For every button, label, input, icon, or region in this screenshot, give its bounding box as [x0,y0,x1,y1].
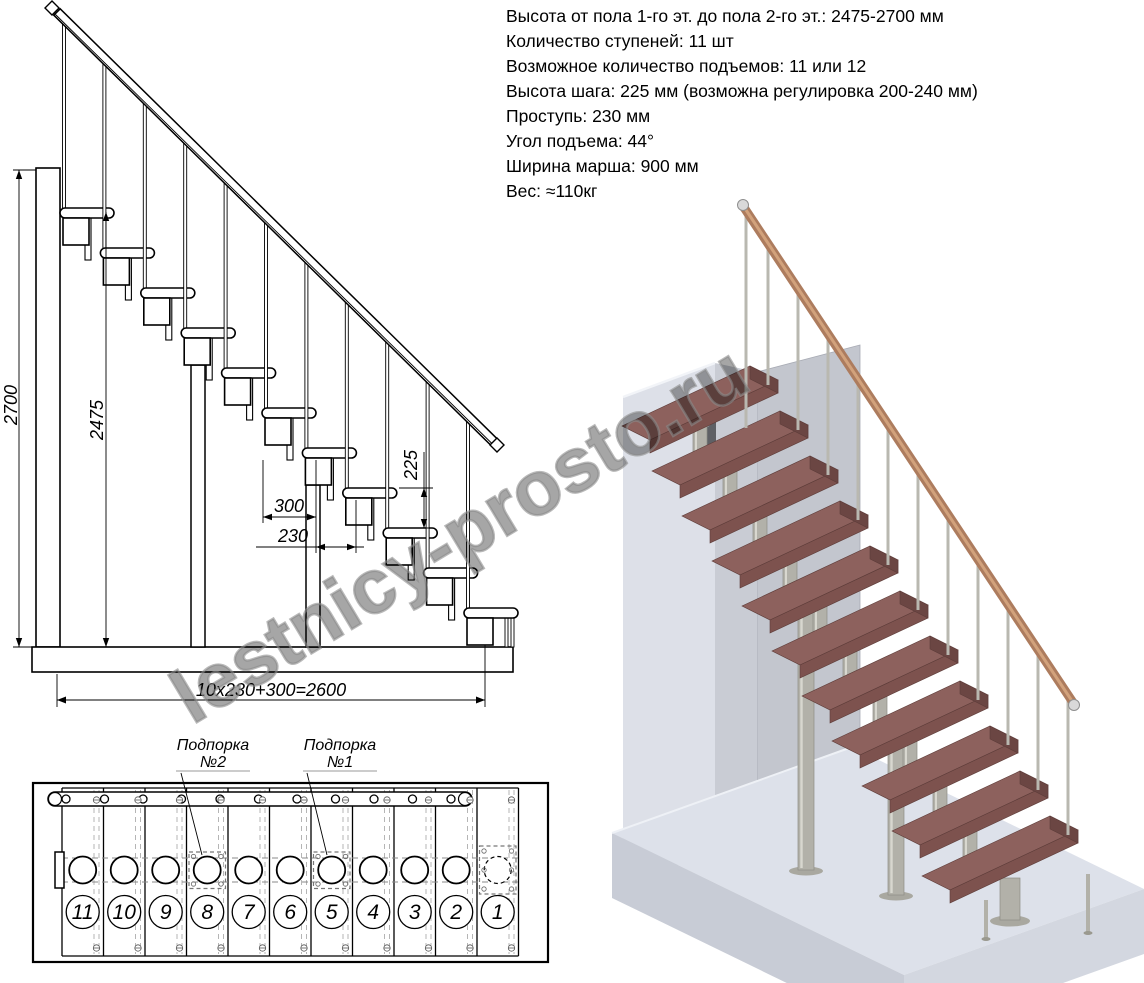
support-callouts: Подпорка №2 Подпорка №1 [177,737,376,771]
plan-step-number: 2 [449,901,462,924]
handrail-cap-top [738,200,749,211]
plan-view: 11 10 9 8 7 6 5 4 3 2 1 Подпорка №2 Подп… [33,737,548,962]
plan-step-number: 9 [160,901,172,924]
plan-step-number: 10 [113,901,137,924]
spec-text-block: Высота от пола 1-го эт. до пола 2-го эт.… [506,6,978,201]
dim-tread-depth: 300 [274,496,304,516]
plan-step-number: 7 [243,901,256,924]
dim-step-rise: 225 [401,449,421,481]
dim-floor-to-floor: 2475 [87,399,107,441]
render-3d [612,200,1144,983]
plan-step-number: 5 [326,901,338,924]
technical-drawing-page: 2700 2475 225 300 230 10x230+300=2600 [0,0,1144,983]
spec-line: Количество ступеней: 11 шт [506,31,734,51]
elevation-view: 2700 2475 225 300 230 10x230+300=2600 [1,1,518,707]
wall-stringer [36,168,60,647]
plan-step-number: 6 [284,901,296,924]
spec-line: Возможное количество подъемов: 11 или 12 [506,56,866,76]
spec-line: Угол подъема: 44° [506,131,654,151]
spec-line: Ширина марша: 900 мм [506,156,699,176]
plan-step-number: 3 [409,901,421,924]
wall-anchor-block [55,852,64,888]
spec-line: Высота от пола 1-го эт. до пола 2-го эт.… [506,6,944,26]
spec-line: Проступь: 230 мм [506,106,650,126]
spec-line: Вес: ≈110кг [506,181,597,201]
support-column-2 [191,365,205,647]
support-2-number: №2 [200,754,226,771]
plan-step-number: 8 [201,901,213,924]
handrail-cap-bottom [1069,700,1080,711]
handrail-elevation [45,1,504,452]
spec-line: Высота шага: 225 мм (возможна регулировк… [506,81,978,101]
dim-step-run: 230 [277,526,308,546]
support-1-number: №1 [327,754,353,771]
support-1-label: Подпорка [304,737,376,754]
plan-step-number: 11 [72,901,94,924]
dim-total-height: 2700 [1,385,21,426]
plan-step-number: 1 [492,901,504,924]
plan-step-number: 4 [367,901,379,924]
support-2-label: Подпорка [177,737,249,754]
staircase-drawing-canvas: 2700 2475 225 300 230 10x230+300=2600 [0,0,1144,983]
